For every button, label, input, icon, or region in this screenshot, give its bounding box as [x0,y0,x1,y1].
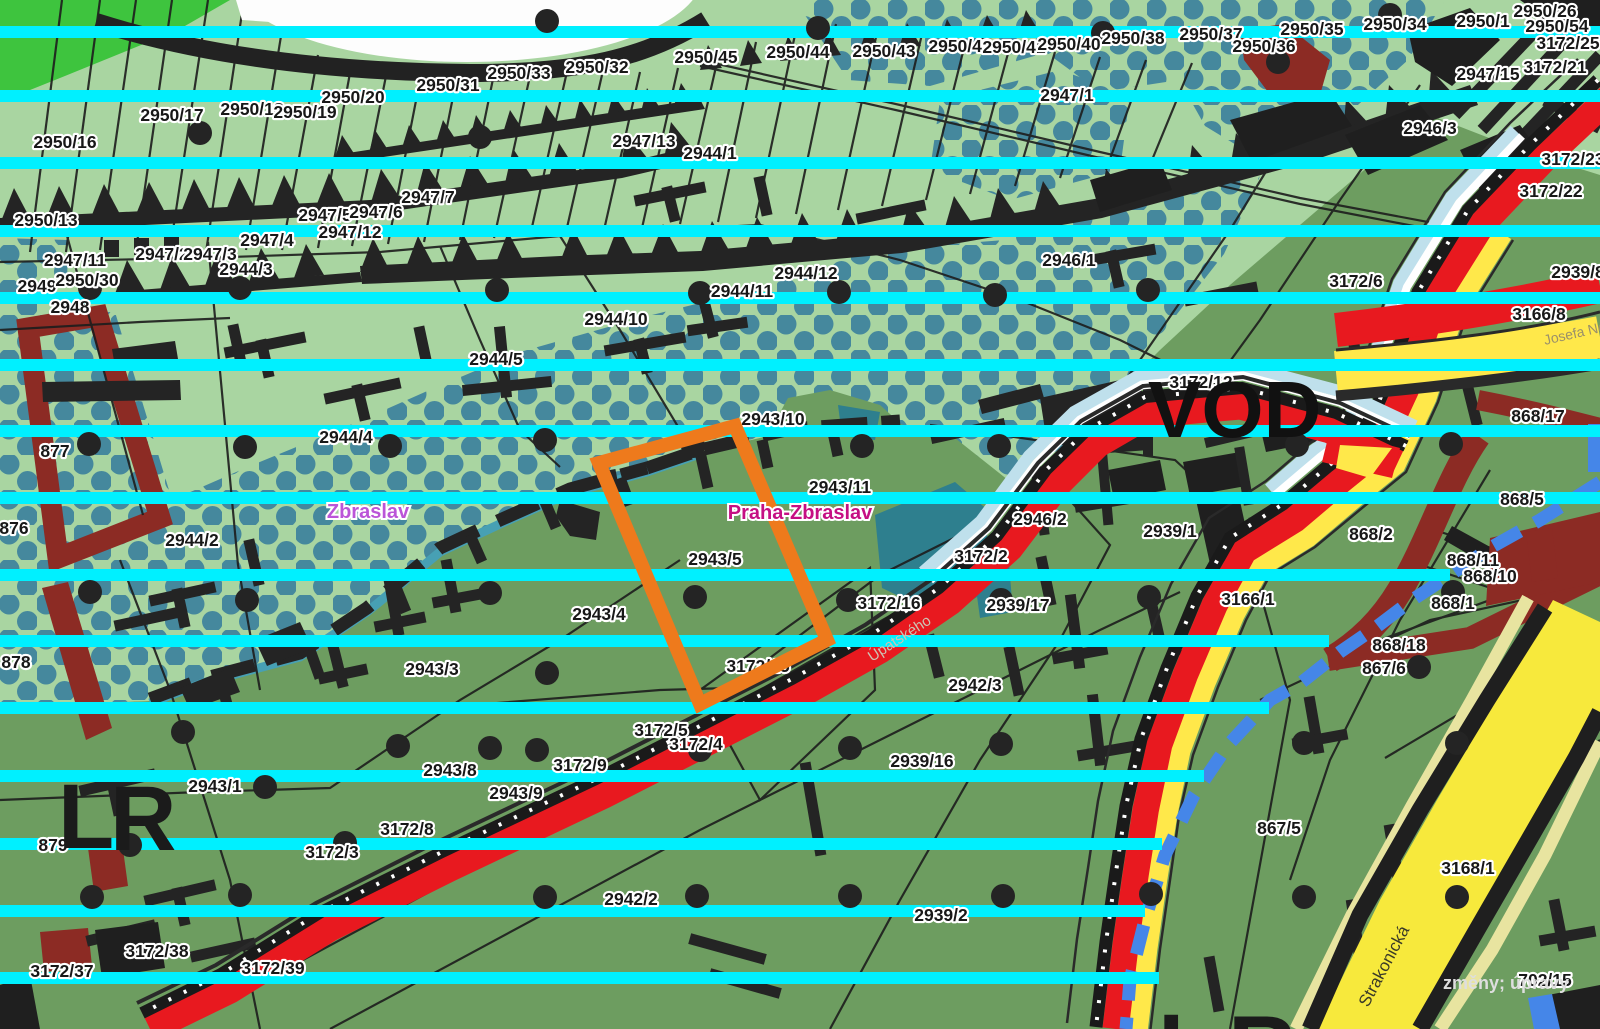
svg-text:2939/8: 2939/8 [1551,262,1600,282]
svg-text:3172/16: 3172/16 [857,593,921,613]
svg-text:877: 877 [40,441,69,461]
svg-text:2950/33: 2950/33 [487,63,551,83]
svg-text:2950/44: 2950/44 [766,42,830,62]
svg-text:2944/2: 2944/2 [165,530,219,550]
svg-text:3172/39: 3172/39 [241,958,305,978]
svg-text:2943/3: 2943/3 [405,659,459,679]
svg-text:2943/9: 2943/9 [489,783,543,803]
svg-text:2947/11: 2947/11 [44,250,107,270]
svg-text:2944/5: 2944/5 [469,349,523,369]
svg-text:2942/2: 2942/2 [604,889,658,909]
svg-text:868/17: 868/17 [1511,406,1565,426]
svg-text:2942/3: 2942/3 [948,675,1002,695]
svg-text:2944/4: 2944/4 [319,427,373,447]
svg-text:2943/11: 2943/11 [809,477,872,497]
svg-text:2949: 2949 [18,276,57,296]
svg-text:3172/38: 3172/38 [125,941,189,961]
svg-text:868/1: 868/1 [1431,593,1475,613]
svg-text:867/5: 867/5 [1257,818,1301,838]
svg-text:VOD: VOD [1148,365,1321,454]
svg-text:3168/1: 3168/1 [1441,858,1495,878]
svg-text:3172/3: 3172/3 [305,842,359,862]
svg-text:3172/21: 3172/21 [1523,57,1587,77]
svg-text:2950/36: 2950/36 [1232,36,1296,56]
svg-text:2944/1: 2944/1 [683,143,737,163]
svg-text:3172/2: 3172/2 [954,546,1008,566]
svg-text:L: L [1158,995,1216,1029]
svg-text:2946/3: 2946/3 [1403,118,1457,138]
svg-text:Praha-Zbraslav: Praha-Zbraslav [728,502,873,524]
svg-text:2950/17: 2950/17 [140,105,203,125]
svg-text:2950/30: 2950/30 [55,270,119,290]
svg-text:R: R [1228,997,1297,1029]
svg-text:2947/12: 2947/12 [318,222,382,242]
svg-text:L: L [58,766,114,868]
svg-text:2950/31: 2950/31 [416,75,480,95]
svg-text:2950/16: 2950/16 [33,132,97,152]
svg-text:2946/2: 2946/2 [1013,509,1067,529]
svg-text:2943/8: 2943/8 [423,760,477,780]
svg-text:868/18: 868/18 [1372,635,1426,655]
svg-text:2950/13: 2950/13 [14,210,78,230]
svg-text:2943/10: 2943/10 [741,409,805,429]
svg-text:3172/8: 3172/8 [380,819,434,839]
svg-text:3172/23: 3172/23 [1541,149,1600,169]
svg-text:876: 876 [0,518,29,538]
svg-text:2947/15: 2947/15 [1456,64,1520,84]
svg-text:změny; úpravy: změny; úpravy [1443,973,1569,993]
svg-text:2944/12: 2944/12 [774,263,838,283]
svg-text:2950/1: 2950/1 [1456,11,1510,31]
svg-text:2939/16: 2939/16 [890,751,954,771]
svg-text:2944/3: 2944/3 [219,259,273,279]
svg-text:2947/13: 2947/13 [612,131,676,151]
svg-text:868/5: 868/5 [1500,489,1544,509]
svg-text:3166/1: 3166/1 [1221,589,1275,609]
svg-text:2939/2: 2939/2 [914,905,968,925]
svg-text:3172/22: 3172/22 [1519,181,1583,201]
svg-text:2950/32: 2950/32 [565,57,629,77]
svg-text:2950/35: 2950/35 [1280,19,1344,39]
svg-text:2944/10: 2944/10 [584,309,648,329]
svg-text:2944/11: 2944/11 [711,281,774,301]
svg-text:868/2: 868/2 [1349,524,1393,544]
svg-text:Zbraslav: Zbraslav [327,501,410,523]
svg-text:2939/17: 2939/17 [986,595,1049,615]
svg-text:2947/6: 2947/6 [349,202,403,222]
svg-text:2950/40: 2950/40 [1037,34,1101,54]
svg-text:R: R [110,768,176,870]
svg-text:3172/6: 3172/6 [1329,271,1383,291]
svg-text:2950/43: 2950/43 [852,41,916,61]
svg-text:2948: 2948 [51,297,90,317]
svg-text:2946/1: 2946/1 [1042,250,1096,270]
svg-text:2950/20: 2950/20 [321,87,385,107]
svg-text:867/6: 867/6 [1362,658,1406,678]
svg-text:3166/8: 3166/8 [1512,304,1566,324]
svg-text:3172/37: 3172/37 [30,961,93,981]
svg-text:2939/1: 2939/1 [1143,521,1197,541]
svg-text:2950/34: 2950/34 [1363,14,1427,34]
svg-text:2950/45: 2950/45 [674,47,738,67]
svg-text:2950/41: 2950/41 [982,37,1046,57]
svg-text:2943/4: 2943/4 [572,604,626,624]
svg-text:2947/4: 2947/4 [240,230,294,250]
svg-text:2943/1: 2943/1 [188,776,242,796]
svg-text:2950/38: 2950/38 [1101,28,1165,48]
svg-text:2947/1: 2947/1 [1040,85,1094,105]
svg-text:878: 878 [1,652,30,672]
svg-text:2947/2: 2947/2 [135,244,189,264]
svg-text:3172/4: 3172/4 [669,734,723,754]
svg-text:3172/25: 3172/25 [1536,33,1600,53]
svg-text:2943/5: 2943/5 [688,549,742,569]
svg-text:868/10: 868/10 [1463,566,1517,586]
svg-text:2947/7: 2947/7 [401,187,455,207]
svg-text:3172/9: 3172/9 [553,755,607,775]
